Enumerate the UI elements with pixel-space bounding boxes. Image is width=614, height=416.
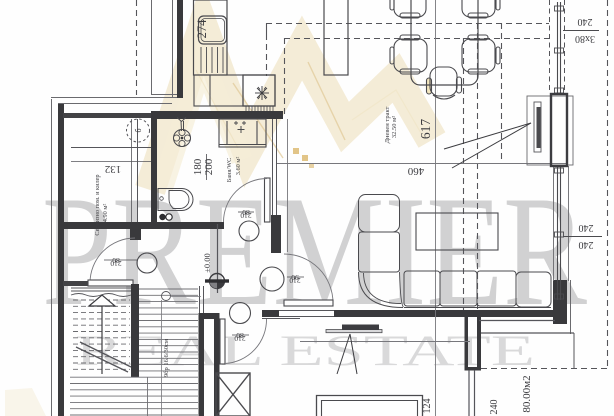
svg-text:240: 240 [579, 222, 594, 233]
svg-text:210: 210 [289, 276, 301, 285]
svg-text:Дневен тракт: Дневен тракт [384, 106, 391, 143]
svg-text:Баня/WC: Баня/WC [226, 158, 233, 183]
svg-text:200: 200 [203, 158, 215, 175]
svg-text:617: 617 [418, 119, 433, 140]
svg-text:124: 124 [422, 399, 433, 414]
svg-text:б: б [134, 128, 143, 132]
svg-text:32.50 м²: 32.50 м² [391, 116, 398, 138]
svg-text:240: 240 [578, 16, 593, 27]
svg-text:210: 210 [234, 334, 246, 343]
svg-text:9бр 16.6/30см: 9бр 16.6/30см [163, 339, 170, 377]
svg-text:±0.00: ±0.00 [202, 253, 212, 273]
svg-text:240: 240 [579, 239, 594, 250]
svg-text:132: 132 [105, 163, 122, 175]
svg-text:460: 460 [407, 165, 424, 177]
svg-text:210: 210 [240, 211, 252, 220]
svg-text:210: 210 [110, 259, 122, 268]
svg-text:80.00м2: 80.00м2 [521, 375, 533, 412]
svg-text:3.60 м²: 3.60 м² [235, 157, 242, 176]
svg-text:4.90 м²: 4.90 м² [102, 204, 109, 223]
svg-text:3x80: 3x80 [575, 33, 595, 44]
svg-text:240: 240 [489, 400, 500, 415]
svg-text:274: 274 [195, 19, 209, 39]
svg-text:Сервизно пом. и килер: Сервизно пом. и килер [94, 174, 101, 235]
